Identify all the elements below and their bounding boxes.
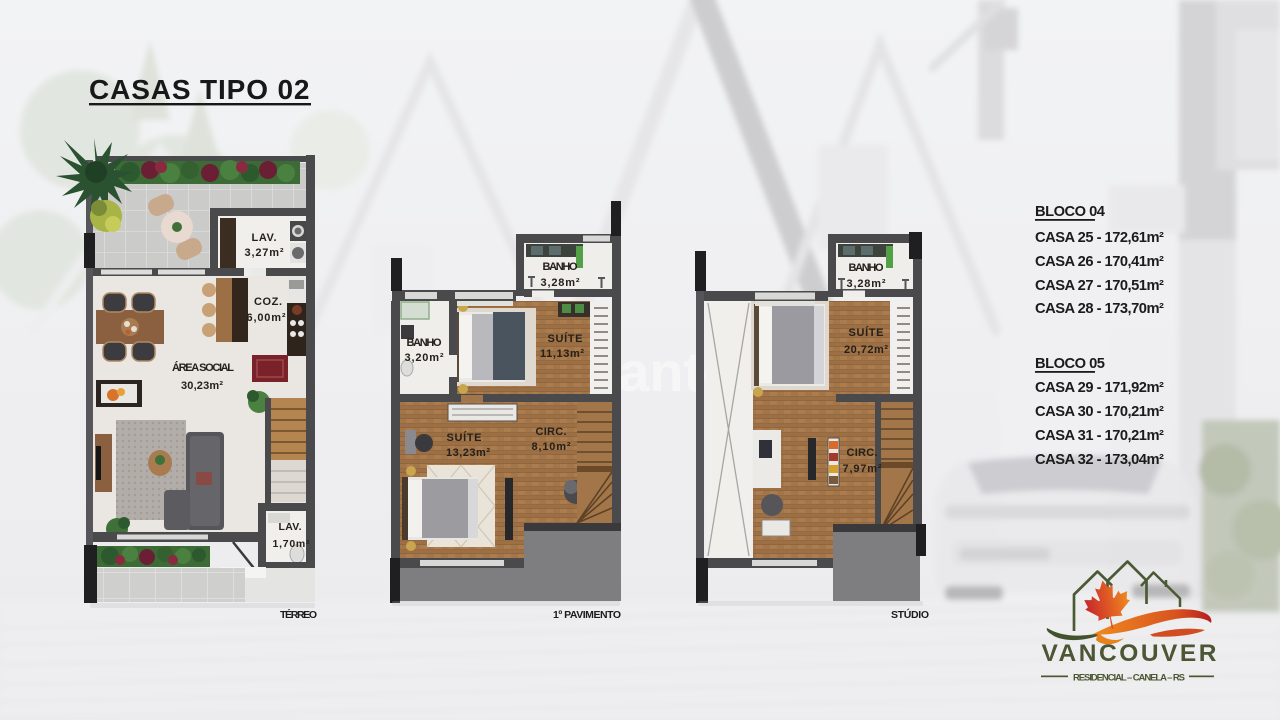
svg-text:SUÍTE: SUÍTE (849, 326, 884, 339)
svg-text:CIRC.: CIRC. (536, 426, 567, 438)
svg-text:3,28m²: 3,28m² (847, 278, 886, 290)
svg-text:TÉRREO: TÉRREO (280, 608, 317, 621)
svg-text:6,00m²: 6,00m² (247, 312, 286, 324)
svg-text:BLOCO 04: BLOCO 04 (1035, 204, 1106, 220)
svg-text:RESIDENCIAL – CANELA – RS: RESIDENCIAL – CANELA – RS (1073, 673, 1185, 684)
svg-text:BANHO: BANHO (407, 337, 442, 349)
svg-text:CASA 27 - 170,51m²: CASA 27 - 170,51m² (1035, 278, 1164, 294)
svg-text:3,28m²: 3,28m² (541, 277, 580, 289)
svg-text:BLOCO 05: BLOCO 05 (1035, 356, 1105, 372)
svg-text:CASA 29 - 171,92m²: CASA 29 - 171,92m² (1035, 380, 1164, 396)
svg-text:20,72m²: 20,72m² (844, 344, 888, 356)
svg-text:BANHO: BANHO (849, 262, 884, 274)
svg-text:1º PAVIMENTO: 1º PAVIMENTO (553, 609, 621, 621)
svg-text:CASA 30 - 170,21m²: CASA 30 - 170,21m² (1035, 404, 1164, 420)
svg-text:30,23m²: 30,23m² (181, 380, 223, 392)
svg-text:SUÍTE: SUÍTE (548, 332, 583, 345)
svg-text:8,10m²: 8,10m² (532, 441, 571, 453)
svg-text:SUÍTE: SUÍTE (447, 431, 482, 444)
svg-text:LAV.: LAV. (252, 232, 277, 244)
svg-text:1,70m²: 1,70m² (273, 538, 311, 550)
svg-text:3,27m²: 3,27m² (245, 247, 284, 259)
svg-text:7,97m²: 7,97m² (843, 463, 882, 475)
svg-text:STÚDIO: STÚDIO (891, 608, 929, 621)
svg-text:11,13m²: 11,13m² (540, 348, 584, 360)
svg-text:13,23m²: 13,23m² (446, 447, 490, 459)
svg-text:CASAS TIPO 02: CASAS TIPO 02 (89, 74, 310, 105)
svg-text:CASA 25 - 172,61m²: CASA 25 - 172,61m² (1035, 230, 1164, 246)
svg-text:CASA 28 - 173,70m²: CASA 28 - 173,70m² (1035, 301, 1164, 317)
svg-text:CIRC.: CIRC. (847, 447, 878, 459)
svg-text:CASA 31 - 170,21m²: CASA 31 - 170,21m² (1035, 428, 1164, 444)
svg-text:CASA 26 - 170,41m²: CASA 26 - 170,41m² (1035, 254, 1164, 270)
svg-text:3,20m²: 3,20m² (405, 352, 444, 364)
svg-text:VANCOUVER: VANCOUVER (1042, 640, 1217, 667)
svg-text:BANHO: BANHO (543, 261, 578, 273)
svg-text:ÁREA SOCIAL: ÁREA SOCIAL (172, 361, 234, 374)
svg-text:CASA 32 - 173,04m²: CASA 32 - 173,04m² (1035, 452, 1164, 468)
svg-text:LAV.: LAV. (279, 521, 302, 533)
svg-text:COZ.: COZ. (254, 296, 282, 308)
